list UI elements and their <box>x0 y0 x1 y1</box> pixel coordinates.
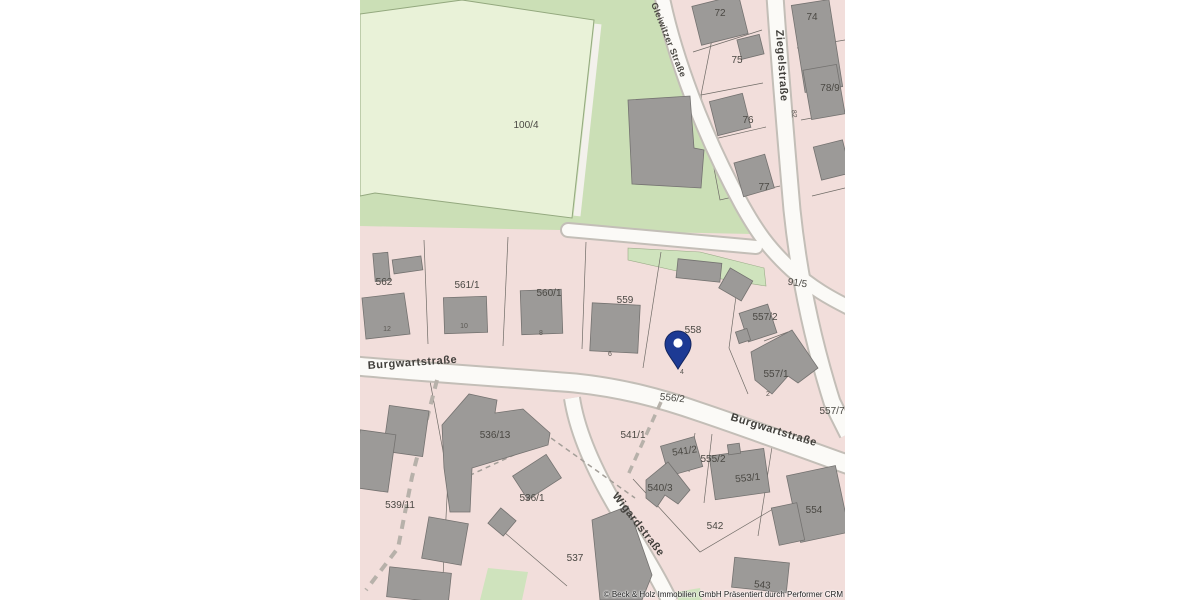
parcel-label: 74 <box>806 12 818 23</box>
parcel-label: 100/4 <box>513 120 538 131</box>
parcel-label: 72 <box>714 8 726 19</box>
green-patch-bottom-left <box>480 568 528 600</box>
parcel-label: 560/1 <box>536 288 561 299</box>
parcel-label: 76 <box>742 115 754 126</box>
parcel-label: 557/7 <box>819 406 844 417</box>
parcel-label: 557/1 <box>763 369 788 380</box>
house-label: 10 <box>460 323 468 330</box>
parcel-label: 542 <box>707 521 724 532</box>
parcel-label: 78/9 <box>820 83 840 94</box>
parcel-label: 555/2 <box>700 454 725 465</box>
parcel-label: 536/13 <box>480 430 511 441</box>
parcel-label: 562 <box>376 277 393 288</box>
parcel-label: 536/1 <box>519 493 544 504</box>
field-parcel-100-4 <box>360 0 594 218</box>
parcel-label: 554 <box>806 505 823 516</box>
parcel-label: 540/3 <box>647 483 672 494</box>
parcel-label: 537 <box>567 553 584 564</box>
map-attribution: © Beck & Holz Immobilien GmbH Präsentier… <box>604 590 843 599</box>
parcel-label: 561/1 <box>454 280 479 291</box>
house-label: 2 <box>766 391 770 398</box>
parcel-label: 77 <box>758 182 770 193</box>
parcel-label: 557/2 <box>752 312 777 323</box>
house-label: 4 <box>680 369 684 376</box>
house-label: 12 <box>383 326 391 333</box>
map-container: 100/47274757678/97791/5562561/1560/15595… <box>360 0 845 600</box>
house-label: 6 <box>608 351 612 358</box>
map-canvas[interactable]: 100/47274757678/97791/5562561/1560/15595… <box>360 0 845 600</box>
house-label: 82 <box>790 110 798 118</box>
parcel-label: 75 <box>731 55 743 66</box>
parcel-label: 559 <box>617 295 634 306</box>
parcel-label: 541/1 <box>620 430 645 441</box>
house-label: 8 <box>539 330 543 337</box>
page: 100/47274757678/97791/5562561/1560/15595… <box>0 0 1200 600</box>
parcel-label: 539/11 <box>385 500 415 511</box>
